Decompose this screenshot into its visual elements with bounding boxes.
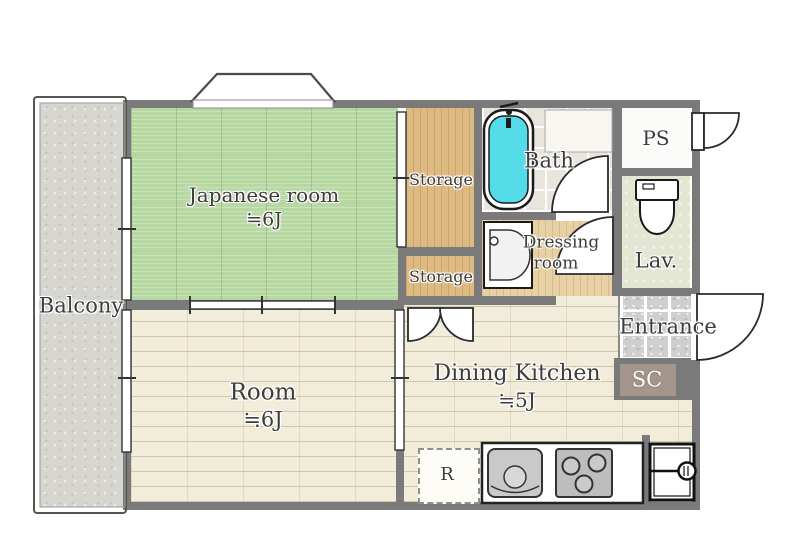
bath-counter xyxy=(545,110,612,152)
storage-upper-label: Storage xyxy=(409,172,473,188)
ps-door-leaf xyxy=(692,113,704,150)
ps-label: PS xyxy=(642,128,669,148)
double-swing-door-left xyxy=(408,308,441,341)
entrance-label: Entrance xyxy=(619,317,717,338)
toilet-icon xyxy=(636,180,678,234)
dining-kitchen-size: ≒5J xyxy=(498,390,536,410)
sliding-door-jr-room xyxy=(190,296,335,314)
bay-window xyxy=(192,74,334,108)
double-swing-door-right xyxy=(440,308,473,341)
dining-kitchen-label: Dining Kitchen xyxy=(433,363,600,385)
window-room-left xyxy=(118,310,136,452)
washing-machine-pan-icon xyxy=(650,444,696,500)
dressing-room-label-line2: room xyxy=(534,256,579,273)
storage-lower-label: Storage xyxy=(409,269,473,285)
kitchen-sink-icon xyxy=(488,449,542,497)
window-japanese-room-left xyxy=(118,158,136,300)
plan-graphics xyxy=(0,0,800,536)
room-label: Room xyxy=(230,382,297,405)
refrigerator-label: R xyxy=(440,466,454,484)
dressing-room-label-line1: Dressing xyxy=(523,235,600,252)
sliding-door-room-dk xyxy=(391,310,409,450)
lav-label: Lav. xyxy=(635,251,678,272)
sc-label: SC xyxy=(632,370,662,391)
room-size: ≒6J xyxy=(243,410,282,431)
kitchen-counter xyxy=(482,443,643,503)
japanese-room-label: Japanese room xyxy=(189,185,339,205)
japanese-room-size: ≒6J xyxy=(246,211,282,230)
floor-plan: Balcony Japanese room ≒6J Storage Storag… xyxy=(0,0,800,536)
bath-label: Bath xyxy=(524,151,574,172)
ps-door xyxy=(704,113,739,148)
balcony-label: Balcony xyxy=(39,296,123,317)
stove-icon xyxy=(556,449,612,497)
